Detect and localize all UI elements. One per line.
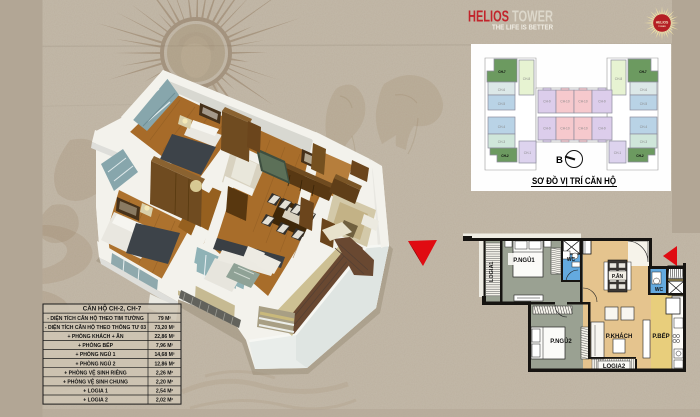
- svg-text:+ PHÒNG KHÁCH + ĂN: + PHÒNG KHÁCH + ĂN: [67, 332, 123, 340]
- svg-text:+ LOGIA 2: + LOGIA 2: [83, 398, 108, 404]
- svg-text:CH-2: CH-2: [501, 154, 509, 158]
- svg-text:+ PHÒNG VỆ SINH RIÊNG: + PHÒNG VỆ SINH RIÊNG: [64, 368, 126, 376]
- svg-text:CH-6: CH-6: [640, 88, 648, 92]
- svg-text:CH-10: CH-10: [560, 127, 569, 131]
- svg-text:WC: WC: [655, 287, 664, 293]
- svg-text:CH-10: CH-10: [578, 100, 587, 104]
- svg-text:P.BẾP: P.BẾP: [652, 333, 669, 340]
- svg-text:SƠ ĐỒ VỊ TRÍ CĂN HỘ: SƠ ĐỒ VỊ TRÍ CĂN HỘ: [532, 175, 616, 186]
- svg-text:P.KHÁCH: P.KHÁCH: [606, 333, 633, 340]
- svg-text:14,68 M²: 14,68 M²: [154, 352, 174, 358]
- svg-text:TOWER: TOWER: [658, 26, 666, 28]
- svg-text:- DIỆN TÍCH CĂN HỘ THEO TIM TƯ: - DIỆN TÍCH CĂN HỘ THEO TIM TƯỜNG: [47, 314, 144, 322]
- svg-text:WC: WC: [567, 257, 576, 263]
- svg-text:- DIỆN TÍCH CĂN HỘ THEO THÔNG: - DIỆN TÍCH CĂN HỘ THEO THÔNG TƯ 03: [45, 323, 146, 331]
- svg-text:CH-1: CH-1: [614, 151, 622, 155]
- svg-text:P.ĂN: P.ĂN: [612, 273, 624, 280]
- svg-text:CH-9: CH-9: [543, 100, 551, 104]
- svg-text:22,86 M²: 22,86 M²: [154, 334, 174, 340]
- svg-text:7,96 M²: 7,96 M²: [156, 343, 174, 349]
- svg-text:CH-2: CH-2: [636, 154, 644, 158]
- svg-text:B: B: [556, 155, 563, 166]
- svg-text:CĂN HỘ CH-2, CH-7: CĂN HỘ CH-2, CH-7: [83, 305, 142, 313]
- svg-text:CH-7: CH-7: [498, 70, 506, 74]
- svg-text:CH-9: CH-9: [598, 100, 606, 104]
- svg-text:2,02 M²: 2,02 M²: [156, 398, 174, 404]
- svg-text:P.NGỦ2: P.NGỦ2: [550, 338, 572, 345]
- svg-text:CH-1: CH-1: [524, 151, 532, 155]
- svg-text:LOGIA1: LOGIA1: [489, 262, 495, 282]
- svg-text:CH-6: CH-6: [498, 88, 506, 92]
- svg-text:CH-4: CH-4: [640, 125, 648, 129]
- svg-text:CH-9: CH-9: [543, 127, 551, 131]
- svg-text:CH-9: CH-9: [598, 127, 606, 131]
- svg-text:12,86 M²: 12,86 M²: [154, 361, 174, 367]
- svg-text:79 M²: 79 M²: [158, 316, 171, 322]
- svg-text:CH-8: CH-8: [523, 77, 531, 81]
- svg-text:CH-3: CH-3: [498, 140, 506, 144]
- svg-text:73,20 M²: 73,20 M²: [154, 325, 174, 331]
- svg-text:2,54 M²: 2,54 M²: [156, 389, 174, 395]
- svg-text:+ PHÒNG NGỦ 1: + PHÒNG NGỦ 1: [75, 350, 115, 358]
- svg-text:HELIOS: HELIOS: [656, 21, 669, 25]
- svg-text:+ PHÒNG BẾP: + PHÒNG BẾP: [78, 341, 114, 349]
- svg-text:CH-5: CH-5: [640, 102, 648, 106]
- svg-text:2,20 M²: 2,20 M²: [156, 380, 174, 386]
- svg-text:CH-8: CH-8: [615, 77, 623, 81]
- svg-text:CH-10: CH-10: [578, 127, 587, 131]
- svg-text:CH-10: CH-10: [560, 100, 569, 104]
- svg-text:CH-3: CH-3: [640, 140, 648, 144]
- svg-text:CH-4: CH-4: [498, 125, 506, 129]
- svg-text:+ PHÒNG NGỦ 2: + PHÒNG NGỦ 2: [75, 359, 115, 367]
- svg-text:2,26 M²: 2,26 M²: [156, 370, 174, 376]
- svg-text:CH-5: CH-5: [498, 102, 506, 106]
- svg-text:P.NGỦ1: P.NGỦ1: [513, 257, 535, 264]
- svg-text:+ LOGIA 1: + LOGIA 1: [83, 389, 108, 395]
- svg-text:CH-7: CH-7: [639, 70, 647, 74]
- svg-text:+ PHÒNG VỆ SINH CHUNG: + PHÒNG VỆ SINH CHUNG: [63, 378, 128, 386]
- svg-text:THE LIFE IS BETTER: THE LIFE IS BETTER: [492, 23, 553, 32]
